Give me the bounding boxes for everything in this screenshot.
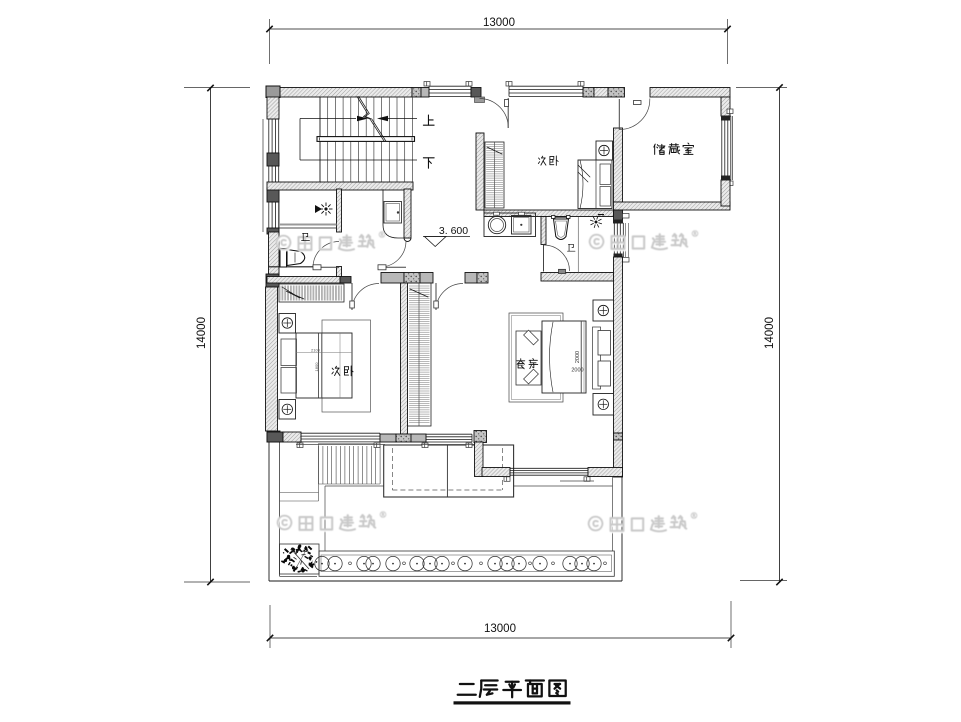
svg-text:14000: 14000: [196, 317, 208, 349]
svg-text:2100: 2100: [311, 348, 321, 353]
svg-text:13000: 13000: [483, 17, 515, 29]
svg-text:14000: 14000: [764, 317, 776, 349]
svg-text:1800: 1800: [314, 362, 319, 372]
svg-text:3. 600: 3. 600: [439, 225, 468, 237]
svg-text:2000: 2000: [571, 368, 583, 374]
svg-text:13000: 13000: [484, 623, 516, 635]
svg-text:2000: 2000: [575, 351, 581, 363]
